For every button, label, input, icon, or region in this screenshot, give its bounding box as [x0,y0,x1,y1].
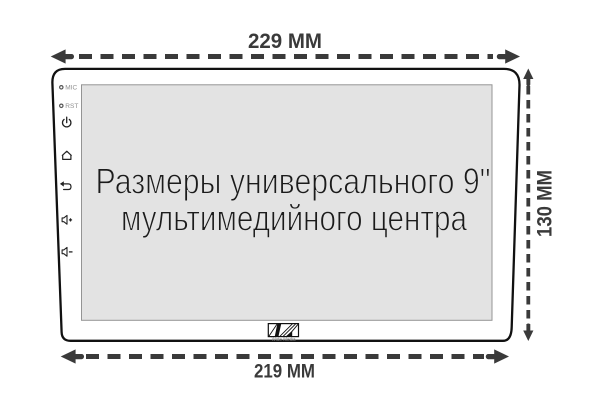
svg-text:Wide Media: Wide Media [272,337,296,343]
svg-text:MIC: MIC [65,85,77,92]
svg-text:219 ММ: 219 ММ [254,362,315,383]
svg-text:RST: RST [65,103,78,110]
svg-text:229 ММ: 229 ММ [248,30,322,53]
svg-text:Размеры универсального 9": Размеры универсального 9" [96,161,491,202]
svg-text:мультимедийного центра: мультимедийного центра [121,198,468,239]
svg-text:130 ММ: 130 ММ [534,170,557,237]
